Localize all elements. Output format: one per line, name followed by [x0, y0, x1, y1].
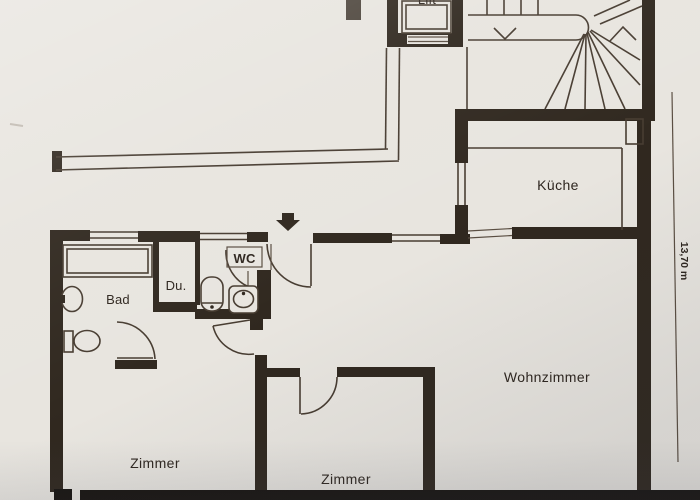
bathroom-door [117, 322, 155, 359]
window-bad [90, 232, 138, 238]
floor-plan-drawing: Lift [0, 0, 700, 500]
bathtub [63, 245, 152, 277]
wall-du-bottom [153, 302, 197, 312]
room-labels: Küche Wohnzimmer Zimmer Zimmer Bad Du. W… [106, 177, 590, 487]
room-label-zimmer-left: Zimmer [130, 455, 180, 471]
room-label-lift: Lift [418, 0, 436, 7]
railing-end-cap [52, 151, 62, 172]
stair-arrow-down [494, 28, 516, 39]
room-label-kitchen: Küche [537, 177, 579, 193]
wall-midroom-right [423, 367, 435, 494]
window-living [392, 235, 440, 241]
stair-kitchen-top-wall [455, 109, 655, 121]
toilet-bad [64, 331, 100, 353]
wall-top-stub [346, 0, 361, 20]
wall-corner-block [250, 314, 263, 330]
middle-room-door [300, 377, 337, 414]
bottom-dark-band [80, 490, 700, 500]
room-label-du: Du. [166, 278, 187, 293]
toilet-wc [201, 277, 223, 311]
wall-top-seg4 [313, 233, 392, 243]
staircase [467, 0, 642, 109]
entrance-arrow-icon [276, 213, 300, 231]
wall-midroom-left [255, 355, 267, 494]
room-label-zimmer-middle: Zimmer [321, 471, 371, 487]
room-label-living: Wohnzimmer [504, 369, 590, 385]
entrance-door [267, 244, 311, 287]
dimension-label: 13,70 m [678, 242, 690, 281]
wc-label-group: WC [227, 247, 262, 267]
kitchen-wall-bottom [512, 227, 643, 239]
floor-plan-scan: Lift [0, 0, 700, 500]
wall-bad-du-divider [153, 241, 159, 304]
lift-cab-inner [406, 5, 447, 29]
balcony-railing [52, 48, 400, 172]
room-label-bad: Bad [106, 292, 130, 307]
stair-wall-right [642, 0, 655, 119]
washbasin [60, 287, 83, 312]
scan-artifacts [10, 124, 700, 500]
lift-door-gap [407, 35, 448, 44]
kitchen-wall-left-upper [455, 109, 468, 163]
bidet [229, 286, 258, 313]
wall-midroom-top [337, 367, 425, 377]
wall-du-wc-divider [195, 241, 200, 305]
wall-right-outer [637, 117, 651, 494]
wall-midroom-top-stub [267, 368, 300, 377]
dimension: 13,70 m [672, 92, 690, 462]
left-room-door [213, 320, 254, 354]
window-wc [200, 234, 247, 240]
wall-left-outer [50, 230, 63, 492]
room-label-wc: WC [233, 251, 255, 266]
wall-top-seg3 [247, 232, 268, 242]
wall-bad-bottom [115, 360, 157, 369]
wall-top-seg5 [440, 234, 470, 244]
window-kitchen-left [458, 163, 465, 205]
wall-top-seg2 [138, 231, 200, 242]
dimension-line [672, 92, 678, 462]
windows [90, 163, 465, 241]
stair-arrow-up [610, 27, 636, 41]
wall-wc-right [257, 270, 271, 319]
